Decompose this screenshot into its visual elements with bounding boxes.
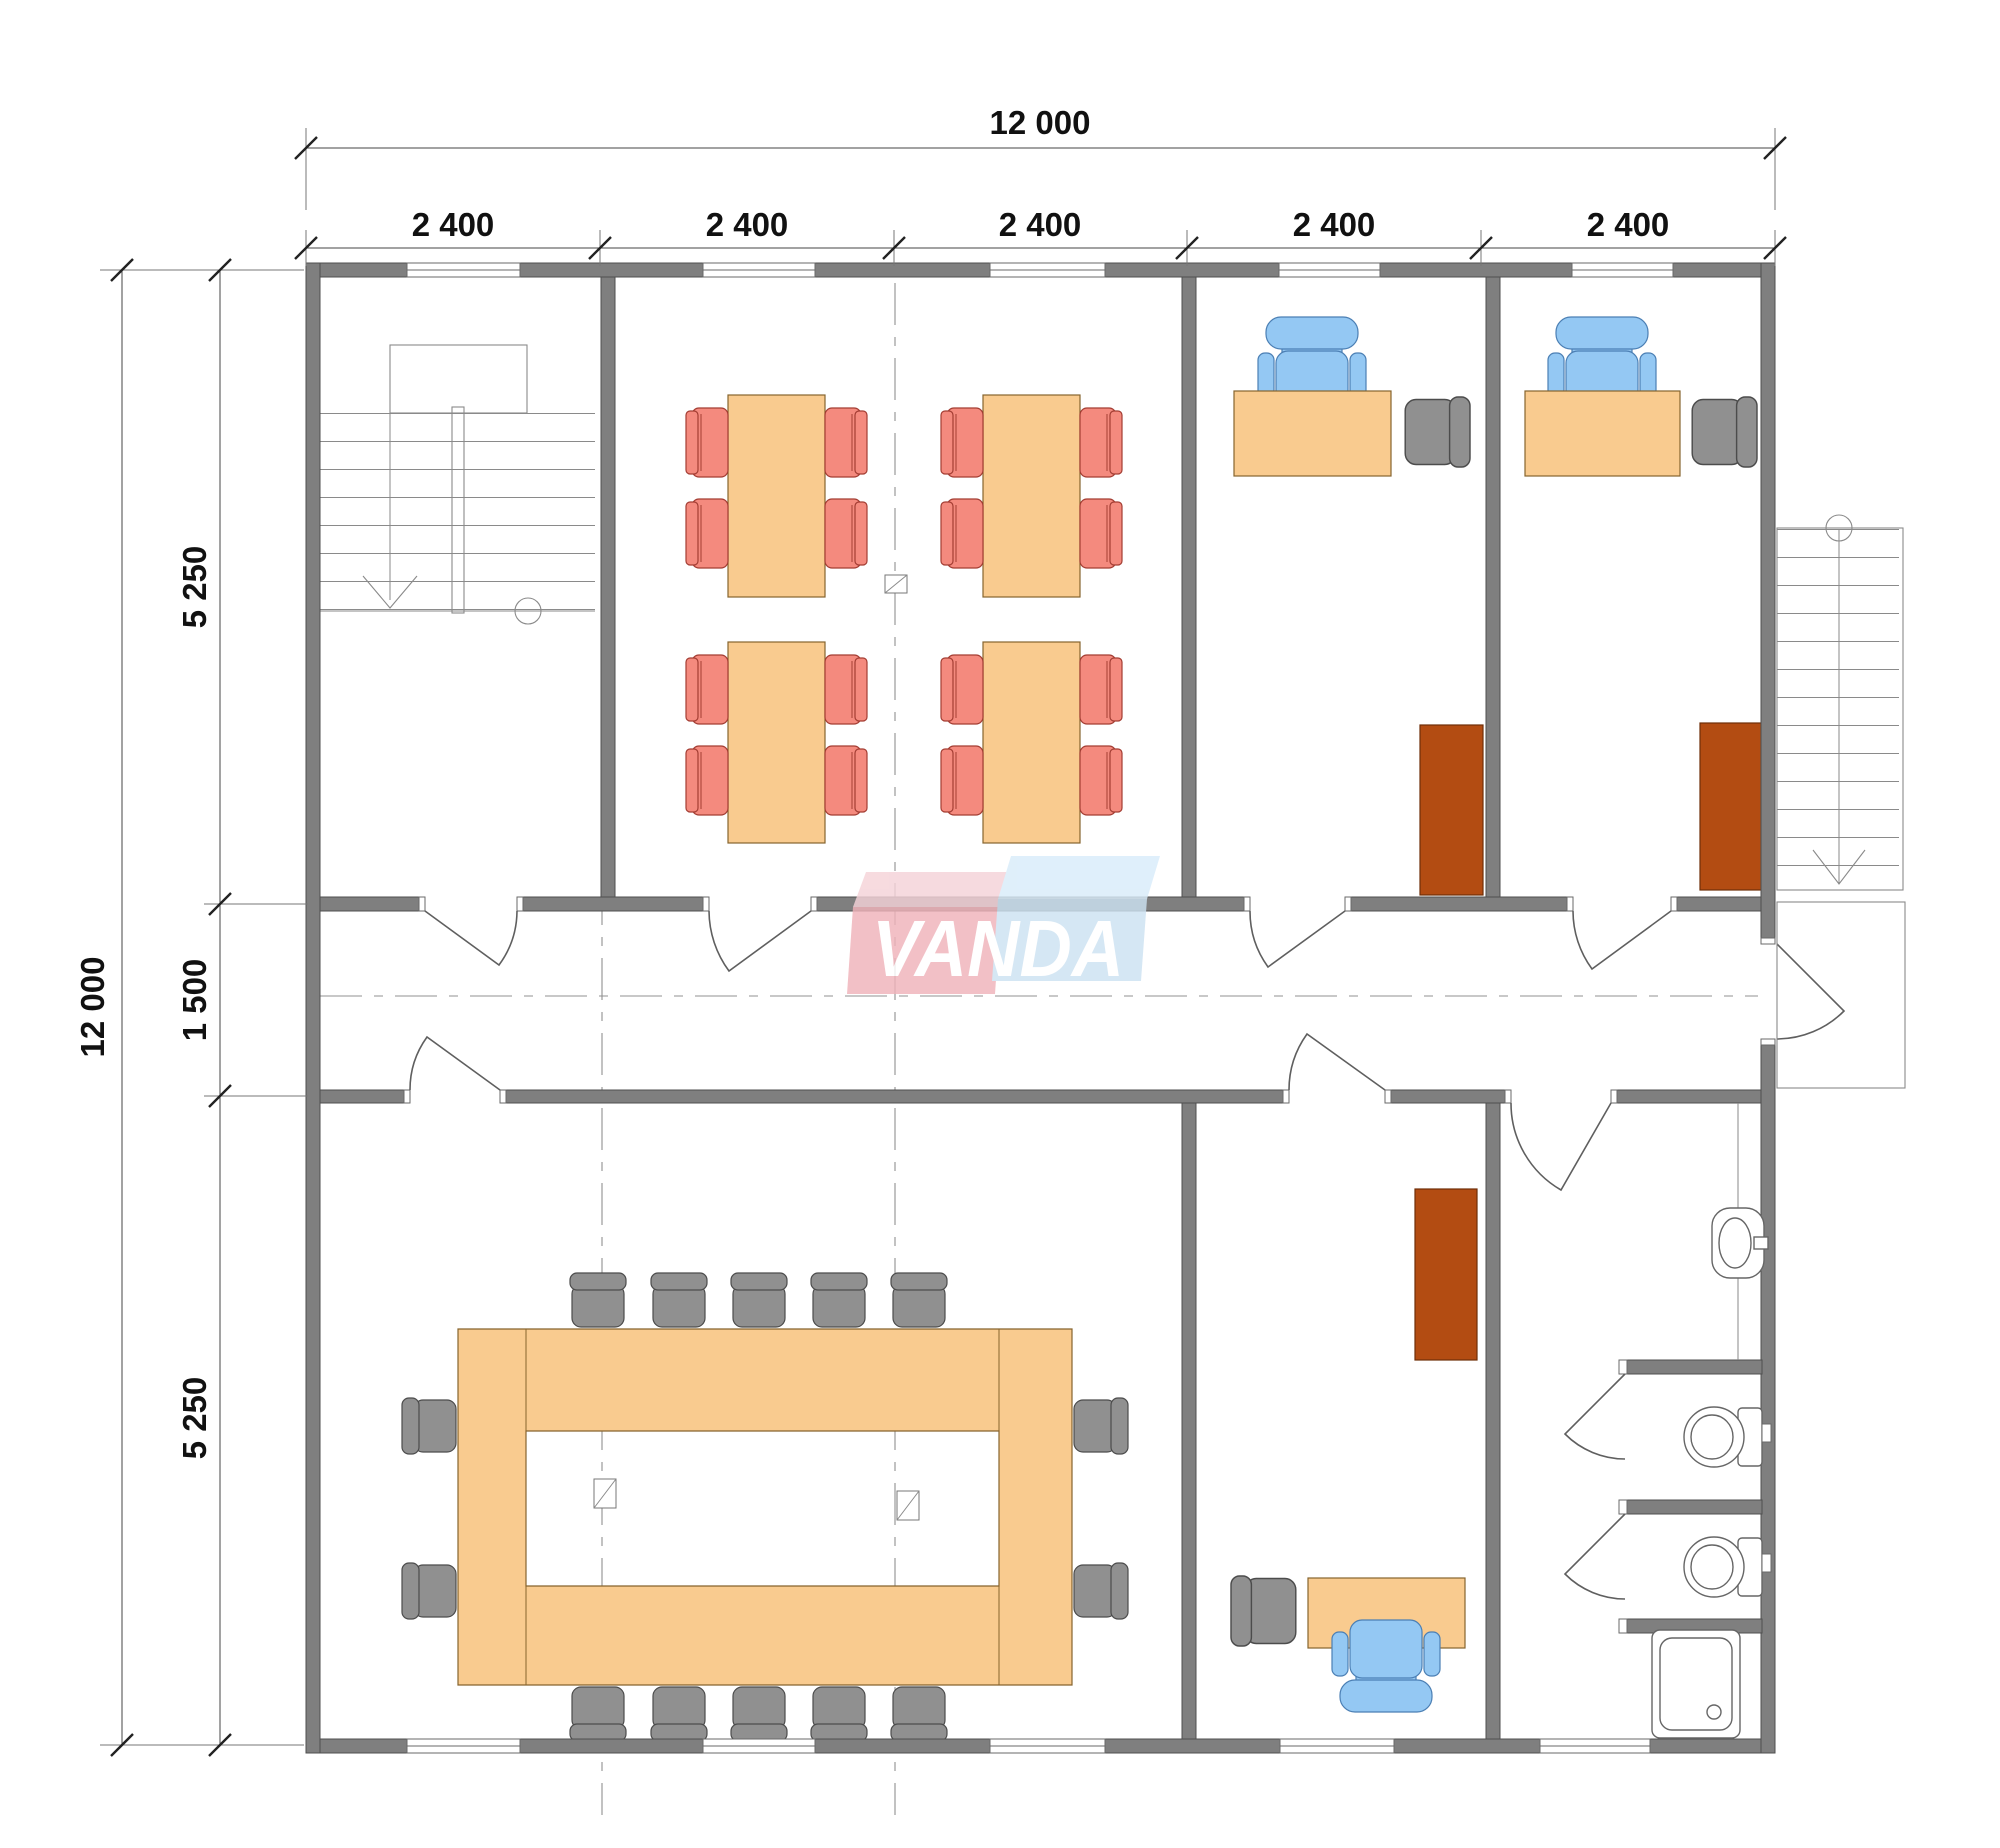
door-exterior	[1777, 944, 1844, 1039]
conference-chair	[891, 1273, 947, 1327]
conference-chair	[402, 1398, 456, 1454]
cabinet	[1415, 1189, 1477, 1360]
cabinet	[1700, 723, 1762, 890]
sink	[1712, 1208, 1768, 1278]
window	[990, 1739, 1105, 1753]
vanda-watermark: VANDA	[847, 856, 1160, 994]
exterior-landing	[1777, 902, 1905, 1088]
conference-table	[458, 1329, 1072, 1685]
conference-chair	[651, 1687, 707, 1741]
window	[1540, 1739, 1650, 1753]
dim-top-seg-2: 2 400	[706, 206, 789, 243]
classroom-chair	[941, 408, 983, 477]
door-office-1	[1250, 911, 1345, 967]
classroom-table	[983, 642, 1080, 843]
office-desk	[1234, 391, 1391, 476]
window	[407, 263, 520, 277]
office-desk	[1525, 391, 1680, 476]
column	[885, 575, 907, 593]
door-classroom	[709, 911, 811, 971]
toilet	[1684, 1407, 1762, 1467]
window	[703, 263, 815, 277]
floor-plan-canvas: VANDA 12 000 2 400 2 400 2 400 2 400 2 4…	[0, 0, 2000, 1848]
door-conference	[410, 1037, 500, 1090]
classroom-chair	[686, 655, 728, 724]
classroom-chair	[686, 746, 728, 815]
conference-chair	[731, 1687, 787, 1741]
door-stair-hall	[425, 911, 517, 965]
guest-chair	[1405, 397, 1470, 467]
shower	[1652, 1630, 1740, 1738]
column	[897, 1491, 919, 1520]
window	[407, 1739, 520, 1753]
dim-left-seg-1: 5 250	[176, 546, 213, 629]
dim-top-seg-1: 2 400	[412, 206, 495, 243]
classroom-chair	[825, 499, 867, 568]
classroom-table	[728, 395, 825, 597]
conference-room	[402, 1273, 1128, 1741]
conference-chair	[891, 1687, 947, 1741]
window	[1572, 263, 1673, 277]
conference-chair	[570, 1687, 626, 1741]
door-stall-1	[1565, 1374, 1625, 1459]
dim-top-seg-4: 2 400	[1293, 206, 1376, 243]
wall-left	[306, 263, 320, 1753]
conference-chair	[1074, 1563, 1128, 1619]
conference-chair	[1074, 1398, 1128, 1454]
logo-blue-top	[998, 856, 1160, 899]
dim-top-seg-5: 2 400	[1587, 206, 1670, 243]
office-top-1	[1234, 317, 1483, 895]
guest-chair	[1692, 397, 1757, 467]
door-stall-2	[1565, 1514, 1625, 1599]
doors	[410, 911, 1844, 1599]
dim-top-seg-3: 2 400	[999, 206, 1082, 243]
classroom	[686, 395, 1122, 843]
classroom-chair	[1080, 499, 1122, 568]
conference-chair	[811, 1687, 867, 1741]
conference-chair	[651, 1273, 707, 1327]
conference-chair	[731, 1273, 787, 1327]
guest-chair	[1231, 1576, 1296, 1646]
classroom-chair	[1080, 408, 1122, 477]
dim-left-seg-2: 1 500	[176, 959, 213, 1042]
window	[703, 1739, 815, 1753]
classroom-chair	[686, 408, 728, 477]
door-office-bottom	[1289, 1034, 1385, 1090]
door-office-2	[1573, 911, 1671, 969]
classroom-chair	[941, 746, 983, 815]
office-bottom	[1231, 1189, 1477, 1712]
dim-top-total: 12 000	[990, 104, 1091, 141]
classroom-table	[728, 642, 825, 843]
classroom-chair	[825, 746, 867, 815]
classroom-table	[983, 395, 1080, 597]
classroom-chair	[941, 655, 983, 724]
window	[990, 263, 1105, 277]
classroom-chair	[1080, 746, 1122, 815]
classroom-chair	[941, 499, 983, 568]
office-top-2	[1525, 317, 1762, 890]
classroom-chair	[1080, 655, 1122, 724]
toilet	[1684, 1537, 1762, 1597]
logo-pink-top	[853, 872, 1014, 907]
cabinet	[1420, 725, 1483, 895]
column	[594, 1479, 616, 1508]
conference-chair	[811, 1273, 867, 1327]
classroom-chair	[686, 499, 728, 568]
door-bathroom	[1511, 1103, 1611, 1190]
conference-chair	[570, 1273, 626, 1327]
vanda-text: VANDA	[872, 904, 1124, 993]
classroom-chair	[825, 655, 867, 724]
window	[1279, 263, 1380, 277]
door-openings	[404, 895, 1777, 1633]
window	[1280, 1739, 1394, 1753]
conference-chair	[402, 1563, 456, 1619]
floor-plan-drawing: VANDA 12 000 2 400 2 400 2 400 2 400 2 4…	[0, 0, 2000, 1848]
dim-left-seg-3: 5 250	[176, 1377, 213, 1460]
bathroom	[1652, 1103, 1771, 1738]
staircase-left	[320, 345, 595, 624]
staircase-right	[1777, 515, 1905, 1088]
classroom-chair	[825, 408, 867, 477]
dim-left-total: 12 000	[74, 957, 111, 1058]
